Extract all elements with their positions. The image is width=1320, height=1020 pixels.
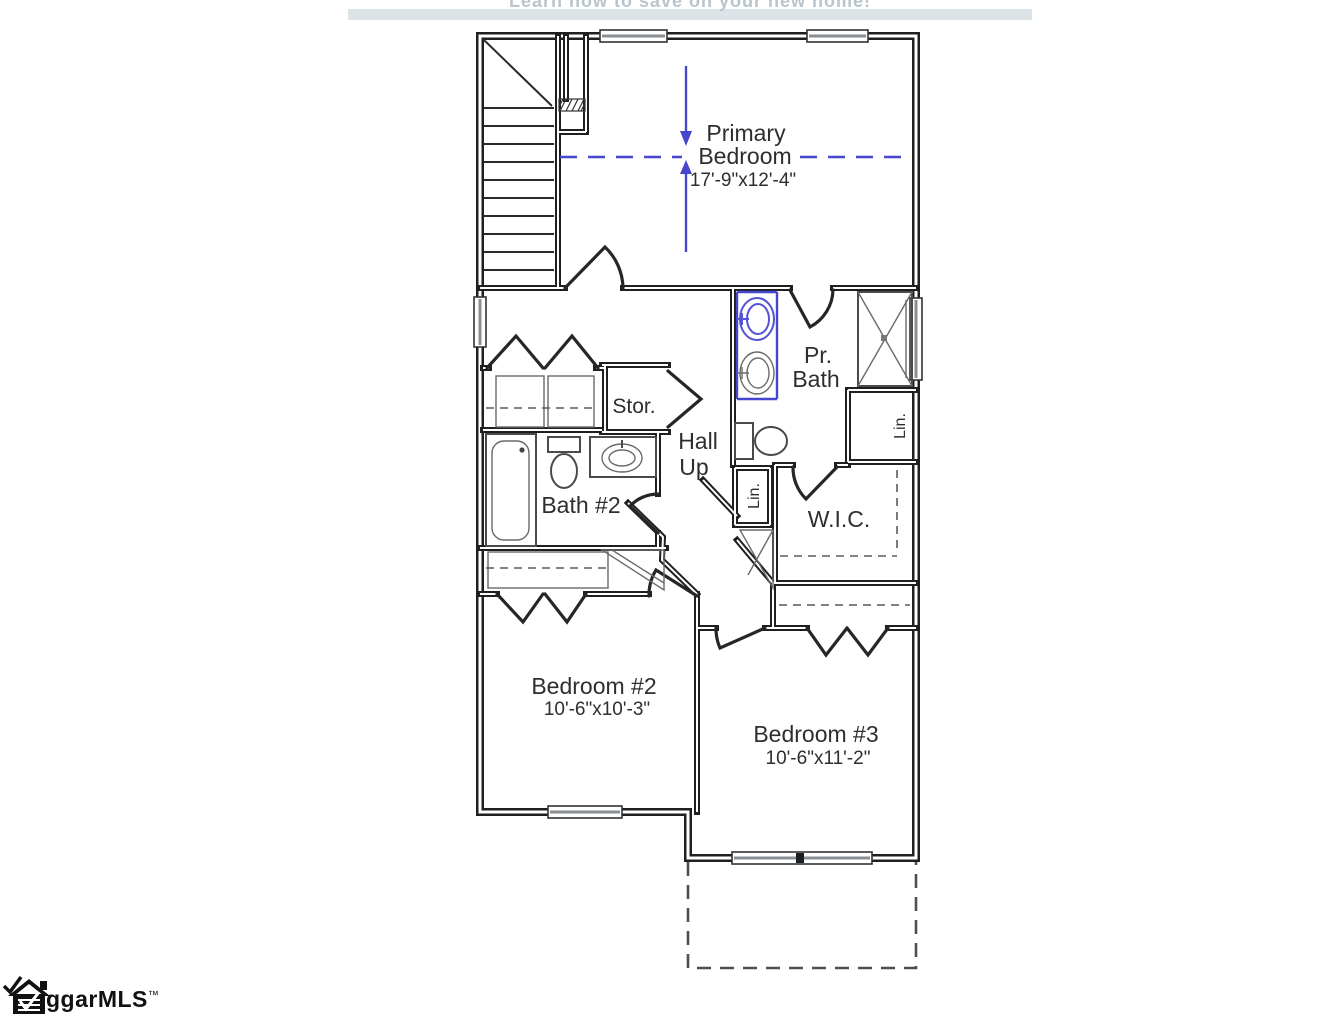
bath2-vanity	[590, 437, 656, 477]
hall-closet-door-right	[545, 336, 598, 368]
mls-logo: ggarMLS™	[0, 974, 170, 1020]
svg-text:Pr.: Pr.	[804, 342, 832, 368]
svg-text:Lin.: Lin.	[746, 483, 763, 509]
bedroom2-closet-door-right	[545, 594, 586, 622]
bath2-label: Bath #2	[541, 492, 620, 518]
hall-closet-door-left	[487, 336, 543, 368]
linen-upper-label: Lin.	[892, 413, 909, 439]
svg-text:Bedroom: Bedroom	[698, 143, 791, 169]
staircase	[484, 40, 585, 270]
window-left	[474, 297, 486, 347]
corner-shelf-right	[740, 530, 773, 588]
vanity-sink-top	[737, 298, 774, 340]
hall-closet-shelves	[486, 376, 598, 427]
window-bedroom3	[732, 852, 872, 864]
trademark-symbol: ™	[148, 989, 160, 1001]
slope-arrows	[680, 66, 692, 252]
primary-bedroom-label: Primary Bedroom 17'-9"x12'-4"	[690, 120, 796, 191]
storage-label: Stor.	[612, 395, 655, 418]
svg-text:Bedroom #2: Bedroom #2	[531, 673, 656, 699]
window-top-2	[807, 30, 868, 42]
patio-outline	[688, 862, 916, 968]
svg-text:Stor.: Stor.	[612, 395, 655, 418]
svg-text:17'-9"x12'-4": 17'-9"x12'-4"	[690, 170, 796, 191]
primary-toilet	[735, 423, 787, 459]
floorplan-image: Learn how to save on your new home!	[0, 0, 1320, 1020]
bath2-toilet	[548, 437, 580, 488]
window-bedroom2	[548, 806, 622, 818]
floorplan-drawing: Primary Bedroom 17'-9"x12'-4" Pr. Bath S…	[0, 0, 1320, 1020]
svg-text:10'-6"x11'-2": 10'-6"x11'-2"	[766, 748, 871, 769]
hall-label: Hall Up	[678, 428, 718, 480]
primary-vanity	[737, 292, 777, 399]
bath2-door	[630, 494, 658, 533]
mls-logo-text: ggarMLS™	[46, 986, 159, 1013]
window-top-1	[600, 30, 667, 42]
bedroom3-door	[716, 628, 765, 648]
primary-bath-door	[790, 290, 833, 327]
room-labels: Primary Bedroom 17'-9"x12'-4" Pr. Bath S…	[531, 120, 909, 769]
bath2-closet-rod	[486, 552, 610, 588]
svg-text:Bath: Bath	[792, 366, 839, 392]
shower	[858, 292, 912, 386]
bedroom2-label: Bedroom #2 10'-6"x10'-3"	[531, 673, 656, 720]
svg-text:Lin.: Lin.	[892, 413, 909, 439]
vanity-sink-bottom	[737, 352, 774, 394]
bedroom3-closet-door-right	[847, 628, 888, 655]
svg-text:W.I.C.: W.I.C.	[808, 506, 871, 532]
primary-bedroom-door	[565, 247, 623, 288]
svg-text:Hall: Hall	[678, 428, 718, 454]
bedroom3-closet-door-left	[807, 628, 847, 655]
svg-text:Up: Up	[679, 454, 708, 480]
svg-text:Bedroom #3: Bedroom #3	[753, 721, 878, 747]
bedroom2-closet-door-left	[497, 594, 543, 622]
storage-door	[668, 371, 701, 427]
stair-hatch	[559, 99, 585, 111]
linen-lower-label: Lin.	[746, 483, 763, 509]
wic-label: W.I.C.	[808, 506, 871, 532]
bathtub	[486, 434, 536, 546]
bedroom3-label: Bedroom #3 10'-6"x11'-2"	[753, 721, 878, 769]
svg-text:10'-6"x10'-3": 10'-6"x10'-3"	[544, 699, 650, 720]
wic-door	[793, 467, 837, 499]
primary-bath-label: Pr. Bath	[792, 342, 839, 392]
svg-text:Bath #2: Bath #2	[541, 492, 620, 518]
